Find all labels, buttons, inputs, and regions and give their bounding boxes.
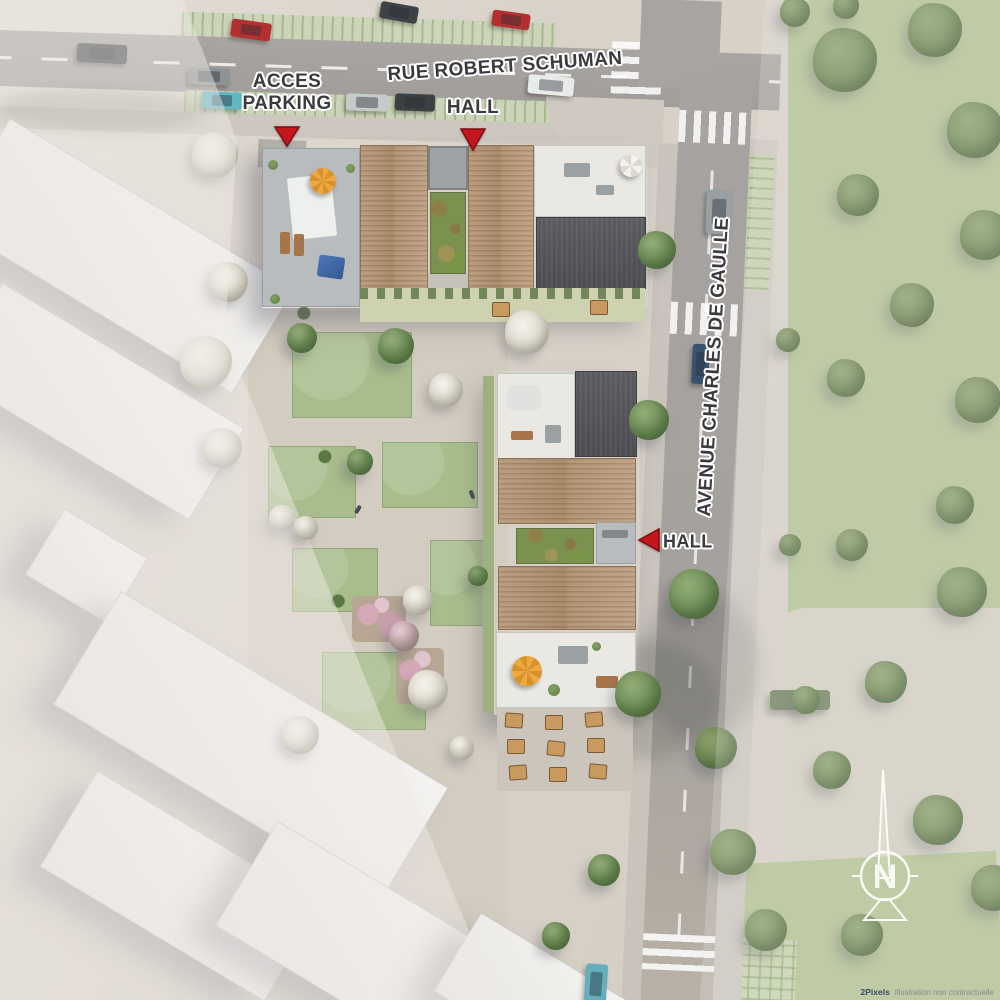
tree (588, 854, 620, 886)
tree (629, 400, 669, 440)
tree (615, 671, 661, 717)
building-b (494, 370, 640, 715)
north-compass: N (840, 762, 932, 932)
blue-canopy (317, 254, 346, 279)
acces-parking-marker-triangle (272, 124, 302, 148)
lawn (382, 442, 478, 508)
car (346, 93, 389, 111)
car (395, 93, 436, 111)
watermark-brand: 2Pixels (861, 987, 890, 997)
crosswalk (678, 110, 751, 145)
roof-terrace (534, 145, 646, 217)
orange-umbrella (512, 656, 542, 686)
dark-roof (575, 371, 637, 457)
roof-terrace (497, 373, 575, 459)
tree (378, 328, 414, 364)
hall-side-marker-triangle (636, 526, 662, 554)
blossom-tree (294, 516, 318, 540)
hall-side-label: HALL (663, 532, 713, 553)
blossom-tree (403, 585, 433, 615)
pink-blossom-tree (389, 621, 419, 651)
roof-terrace (262, 148, 360, 307)
car (527, 74, 574, 97)
tree (468, 566, 488, 586)
pitched-roof (468, 145, 534, 295)
tree (287, 323, 317, 353)
orange-umbrella (310, 168, 336, 194)
green-roof (516, 528, 594, 564)
compass-tail (864, 899, 906, 920)
hall-top-marker-triangle (458, 126, 488, 152)
blossom-tree (450, 736, 474, 760)
tree (347, 449, 373, 475)
white-umbrella (620, 155, 642, 177)
compass-north-letter: N (873, 858, 898, 896)
watermark: 2Pixelsillustration non contractuelle (861, 987, 994, 997)
building-a (262, 140, 648, 308)
blossom-tree (408, 670, 448, 710)
acces-parking-line2: PARKING (242, 93, 331, 115)
blossom-tree (505, 310, 549, 354)
outdoor-dining-terrace (497, 707, 633, 791)
pitched-roof (498, 458, 636, 524)
site-plan-rendering: RUE ROBERT SCHUMAN AVENUE CHARLES DE GAU… (0, 0, 1000, 1000)
pitched-roof (498, 566, 636, 630)
tree (638, 231, 676, 269)
acces-parking-line1: ACCES (242, 71, 331, 93)
planting-strip (483, 376, 494, 712)
ground-garden-strip (360, 288, 645, 322)
roof-access-box (428, 146, 468, 190)
dark-roof (536, 217, 646, 289)
acces-parking-label: ACCES PARKING (242, 71, 331, 115)
watermark-note: illustration non contractuelle (895, 988, 994, 997)
blossom-tree (429, 373, 463, 407)
hall-top-label: HALL (447, 97, 499, 119)
pitched-roof (360, 145, 428, 295)
car (584, 963, 609, 1000)
green-roof (430, 192, 466, 274)
tree (669, 569, 719, 619)
tree (542, 922, 570, 950)
hall-entrance (596, 522, 636, 564)
